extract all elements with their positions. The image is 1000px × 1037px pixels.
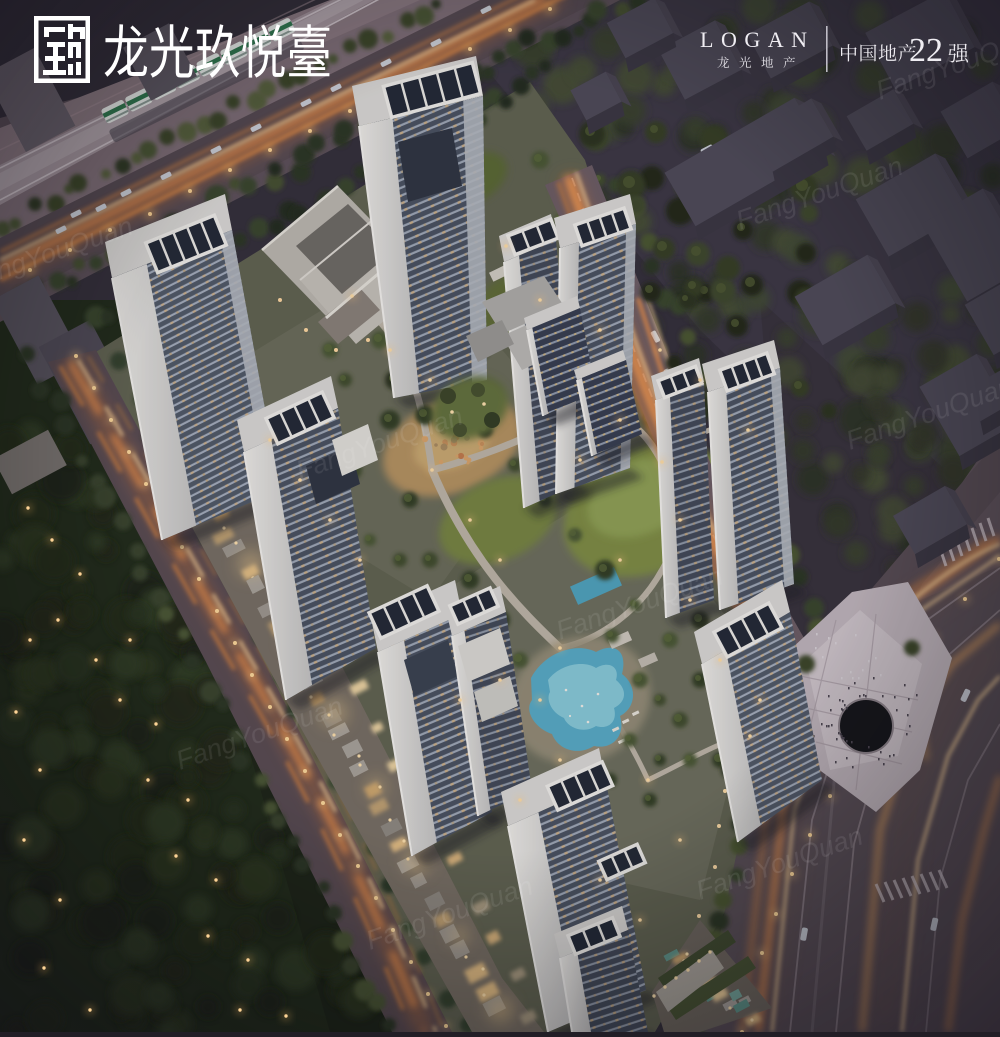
svg-text:22: 22 — [909, 32, 943, 69]
svg-text:LOGAN: LOGAN — [700, 27, 815, 52]
